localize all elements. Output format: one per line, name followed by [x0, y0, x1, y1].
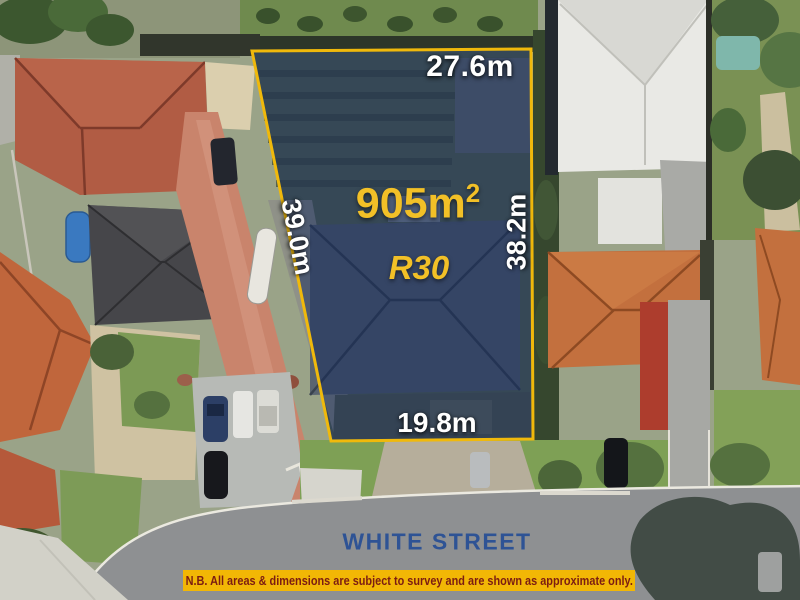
lot-area-superscript: 2 — [466, 178, 480, 208]
parking-bay — [192, 372, 306, 508]
road-tree-shadow — [631, 497, 800, 600]
car-on-road — [758, 552, 782, 592]
driveway-red — [640, 302, 670, 430]
car-silver — [470, 452, 490, 488]
disclaimer-bar: N.B. All areas & dimensions are subject … — [183, 570, 635, 591]
disclaimer-text: N.B. All areas & dimensions are subject … — [185, 573, 632, 588]
van-white — [233, 391, 253, 438]
lot-area-label: 905m2 — [356, 180, 480, 229]
top-garden-strip — [238, 0, 538, 52]
dimension-bottom: 19.8m — [397, 407, 476, 439]
street-name-label: WHITE STREET — [342, 529, 531, 556]
aerial-listing-image: 27.6m 39.0m 38.2m 19.8m 905m2 R30 WHITE … — [0, 0, 800, 600]
car-black-right — [604, 438, 628, 488]
car-blue — [203, 396, 228, 442]
car-black — [204, 451, 228, 499]
zoning-label: R30 — [389, 249, 450, 287]
parked-car-dark — [210, 137, 238, 186]
lot-area-value: 905m — [356, 180, 466, 228]
top-left-trees — [0, 0, 260, 58]
dimension-top: 27.6m — [426, 50, 514, 84]
aerial-photo — [0, 0, 800, 600]
right-garden — [706, 0, 800, 255]
water-tank — [66, 212, 90, 262]
pool-shade — [716, 36, 760, 70]
garage-white — [598, 178, 662, 244]
dimension-right: 38.2m — [502, 194, 533, 271]
side-trees-right-of-lot — [533, 0, 559, 440]
